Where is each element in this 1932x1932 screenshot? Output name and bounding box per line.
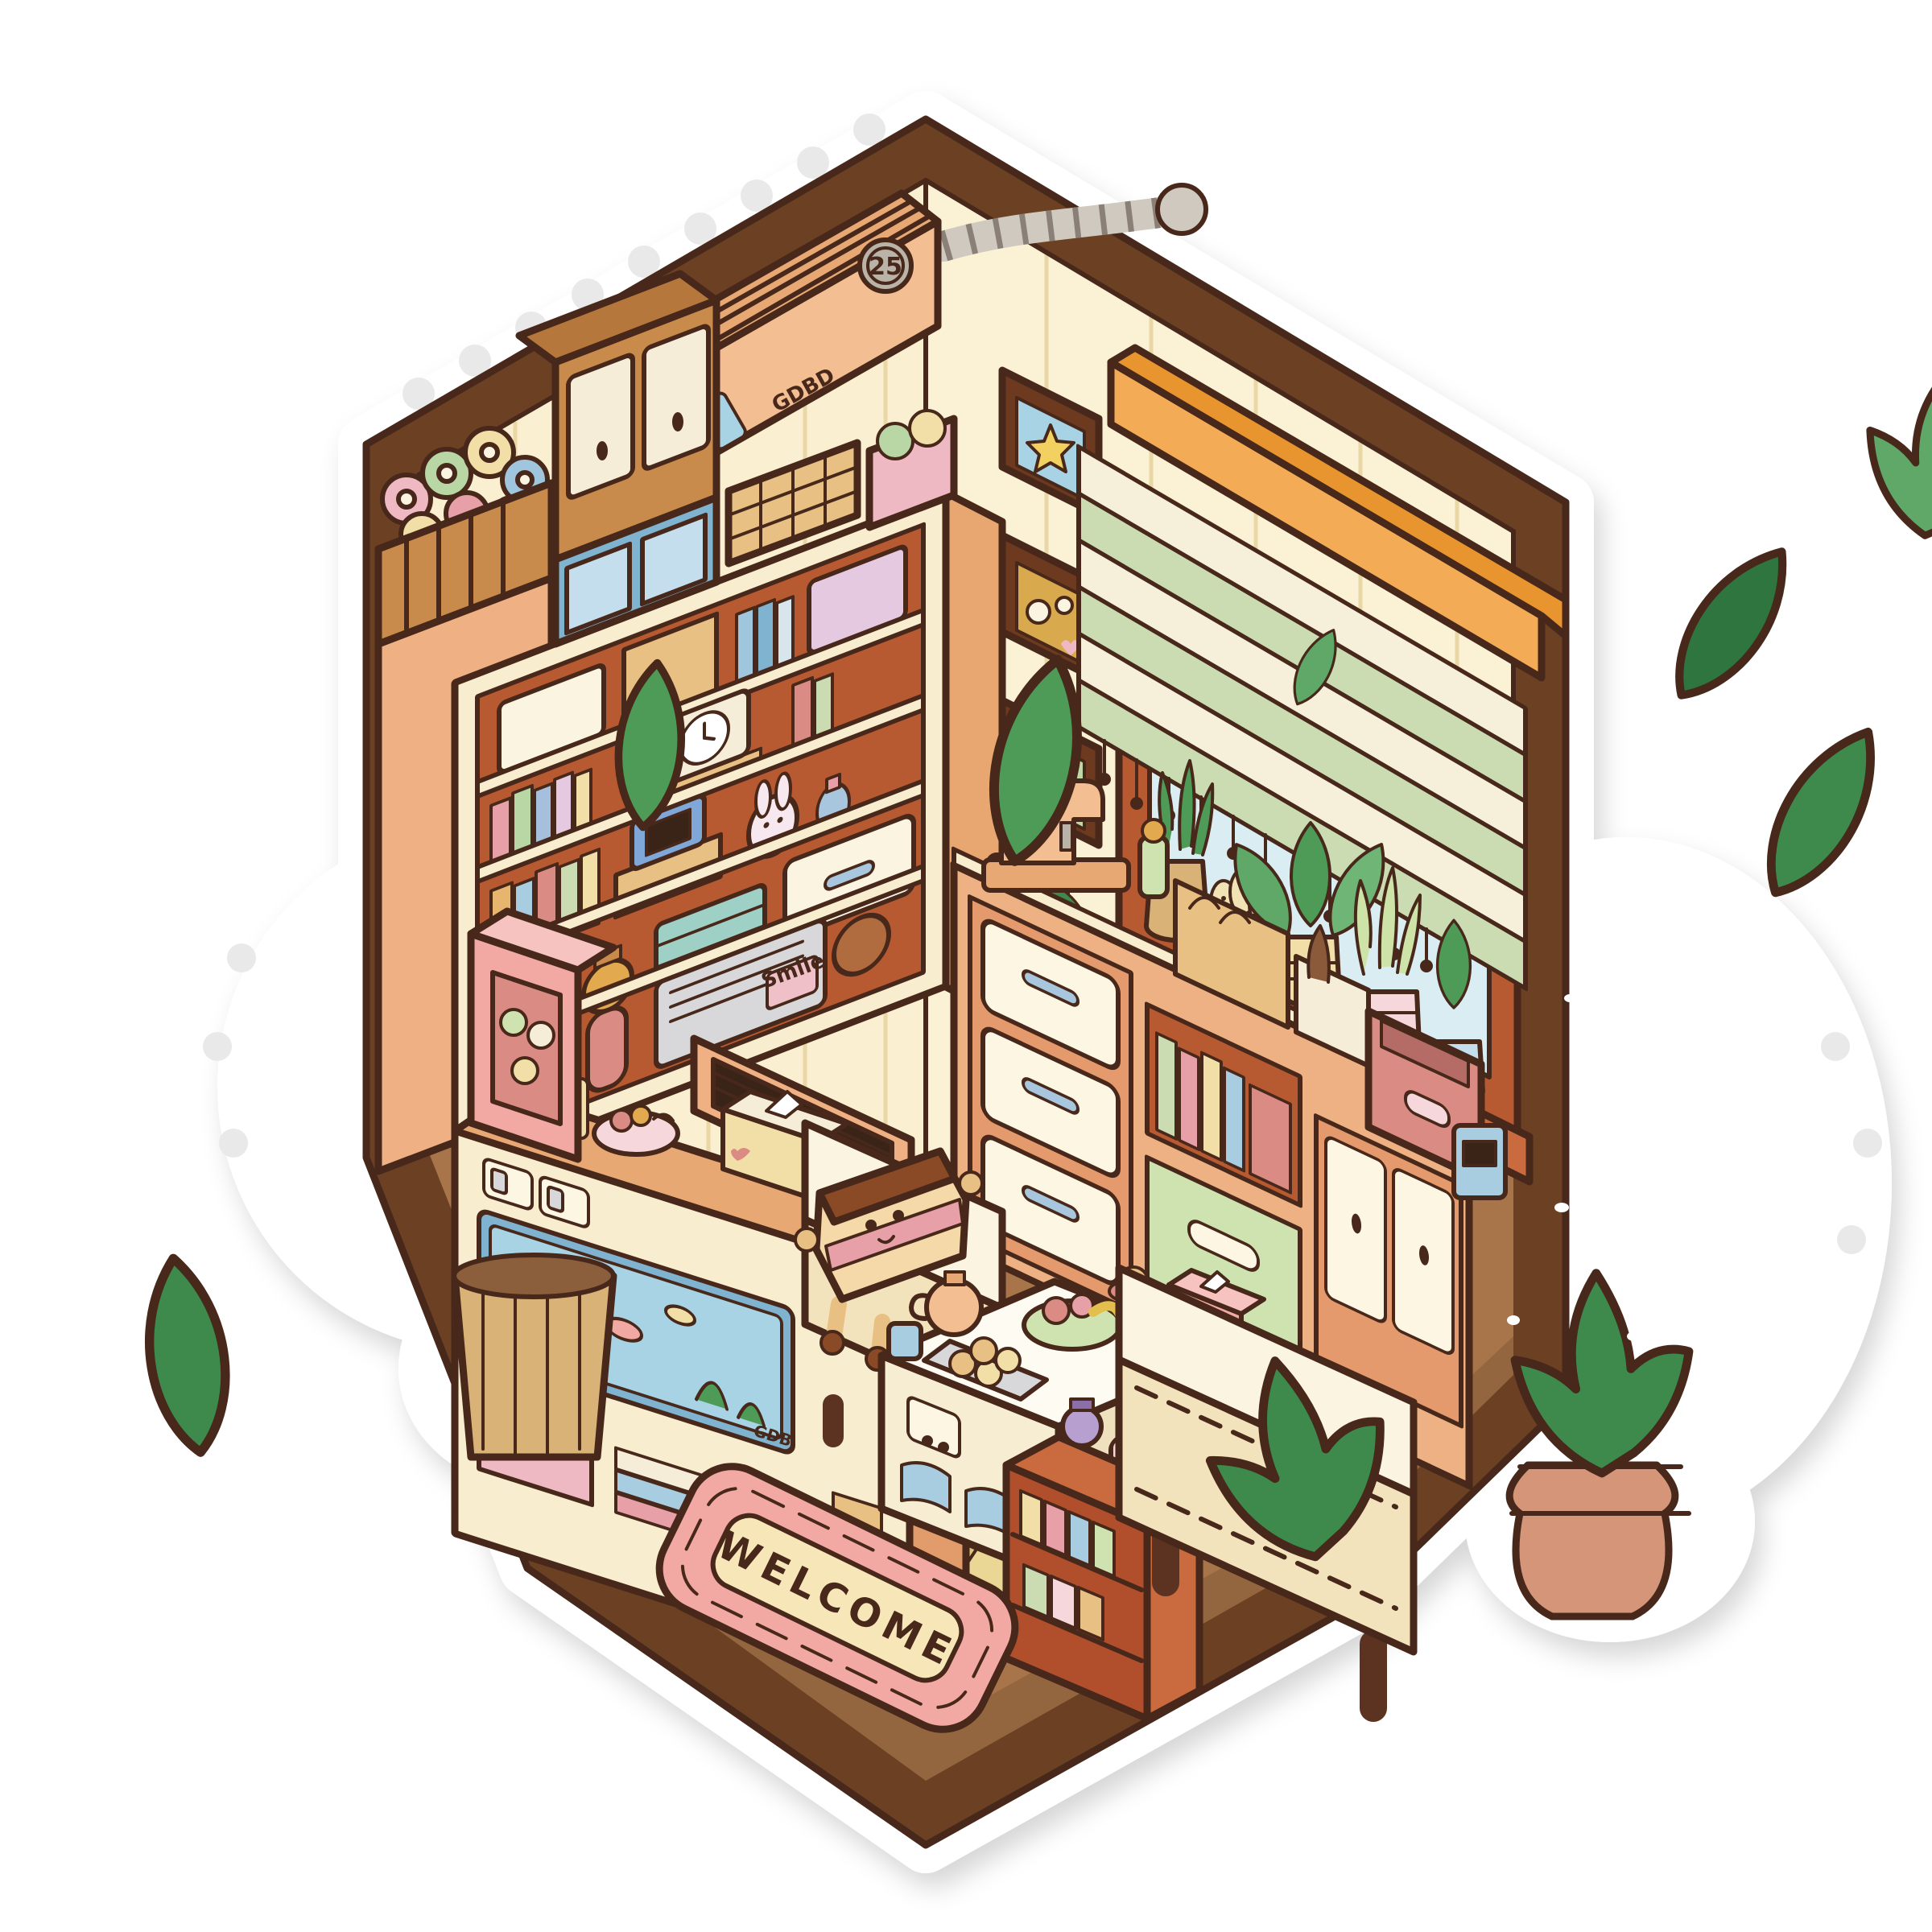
jam-jar: [1063, 1407, 1101, 1446]
thermos: [588, 1003, 626, 1095]
right-pot: [1509, 1465, 1675, 1616]
left-pot: [455, 1276, 613, 1457]
plush-arm: [795, 1228, 818, 1251]
mug: [889, 1323, 921, 1359]
green-bottle: [1140, 837, 1167, 897]
hose-flange: [1158, 185, 1206, 233]
cupcake: [501, 1009, 526, 1035]
sticker-illustration: 25 GDBD: [0, 0, 1932, 1932]
teapot: [927, 1280, 981, 1335]
plush-arm: [960, 1172, 982, 1195]
cupcake: [528, 1022, 554, 1048]
apple: [1043, 1298, 1069, 1323]
cozy-room-scene: 25 GDBD: [0, 0, 1932, 1932]
ac-temp: 25: [869, 253, 902, 281]
cupcake: [512, 1058, 538, 1084]
